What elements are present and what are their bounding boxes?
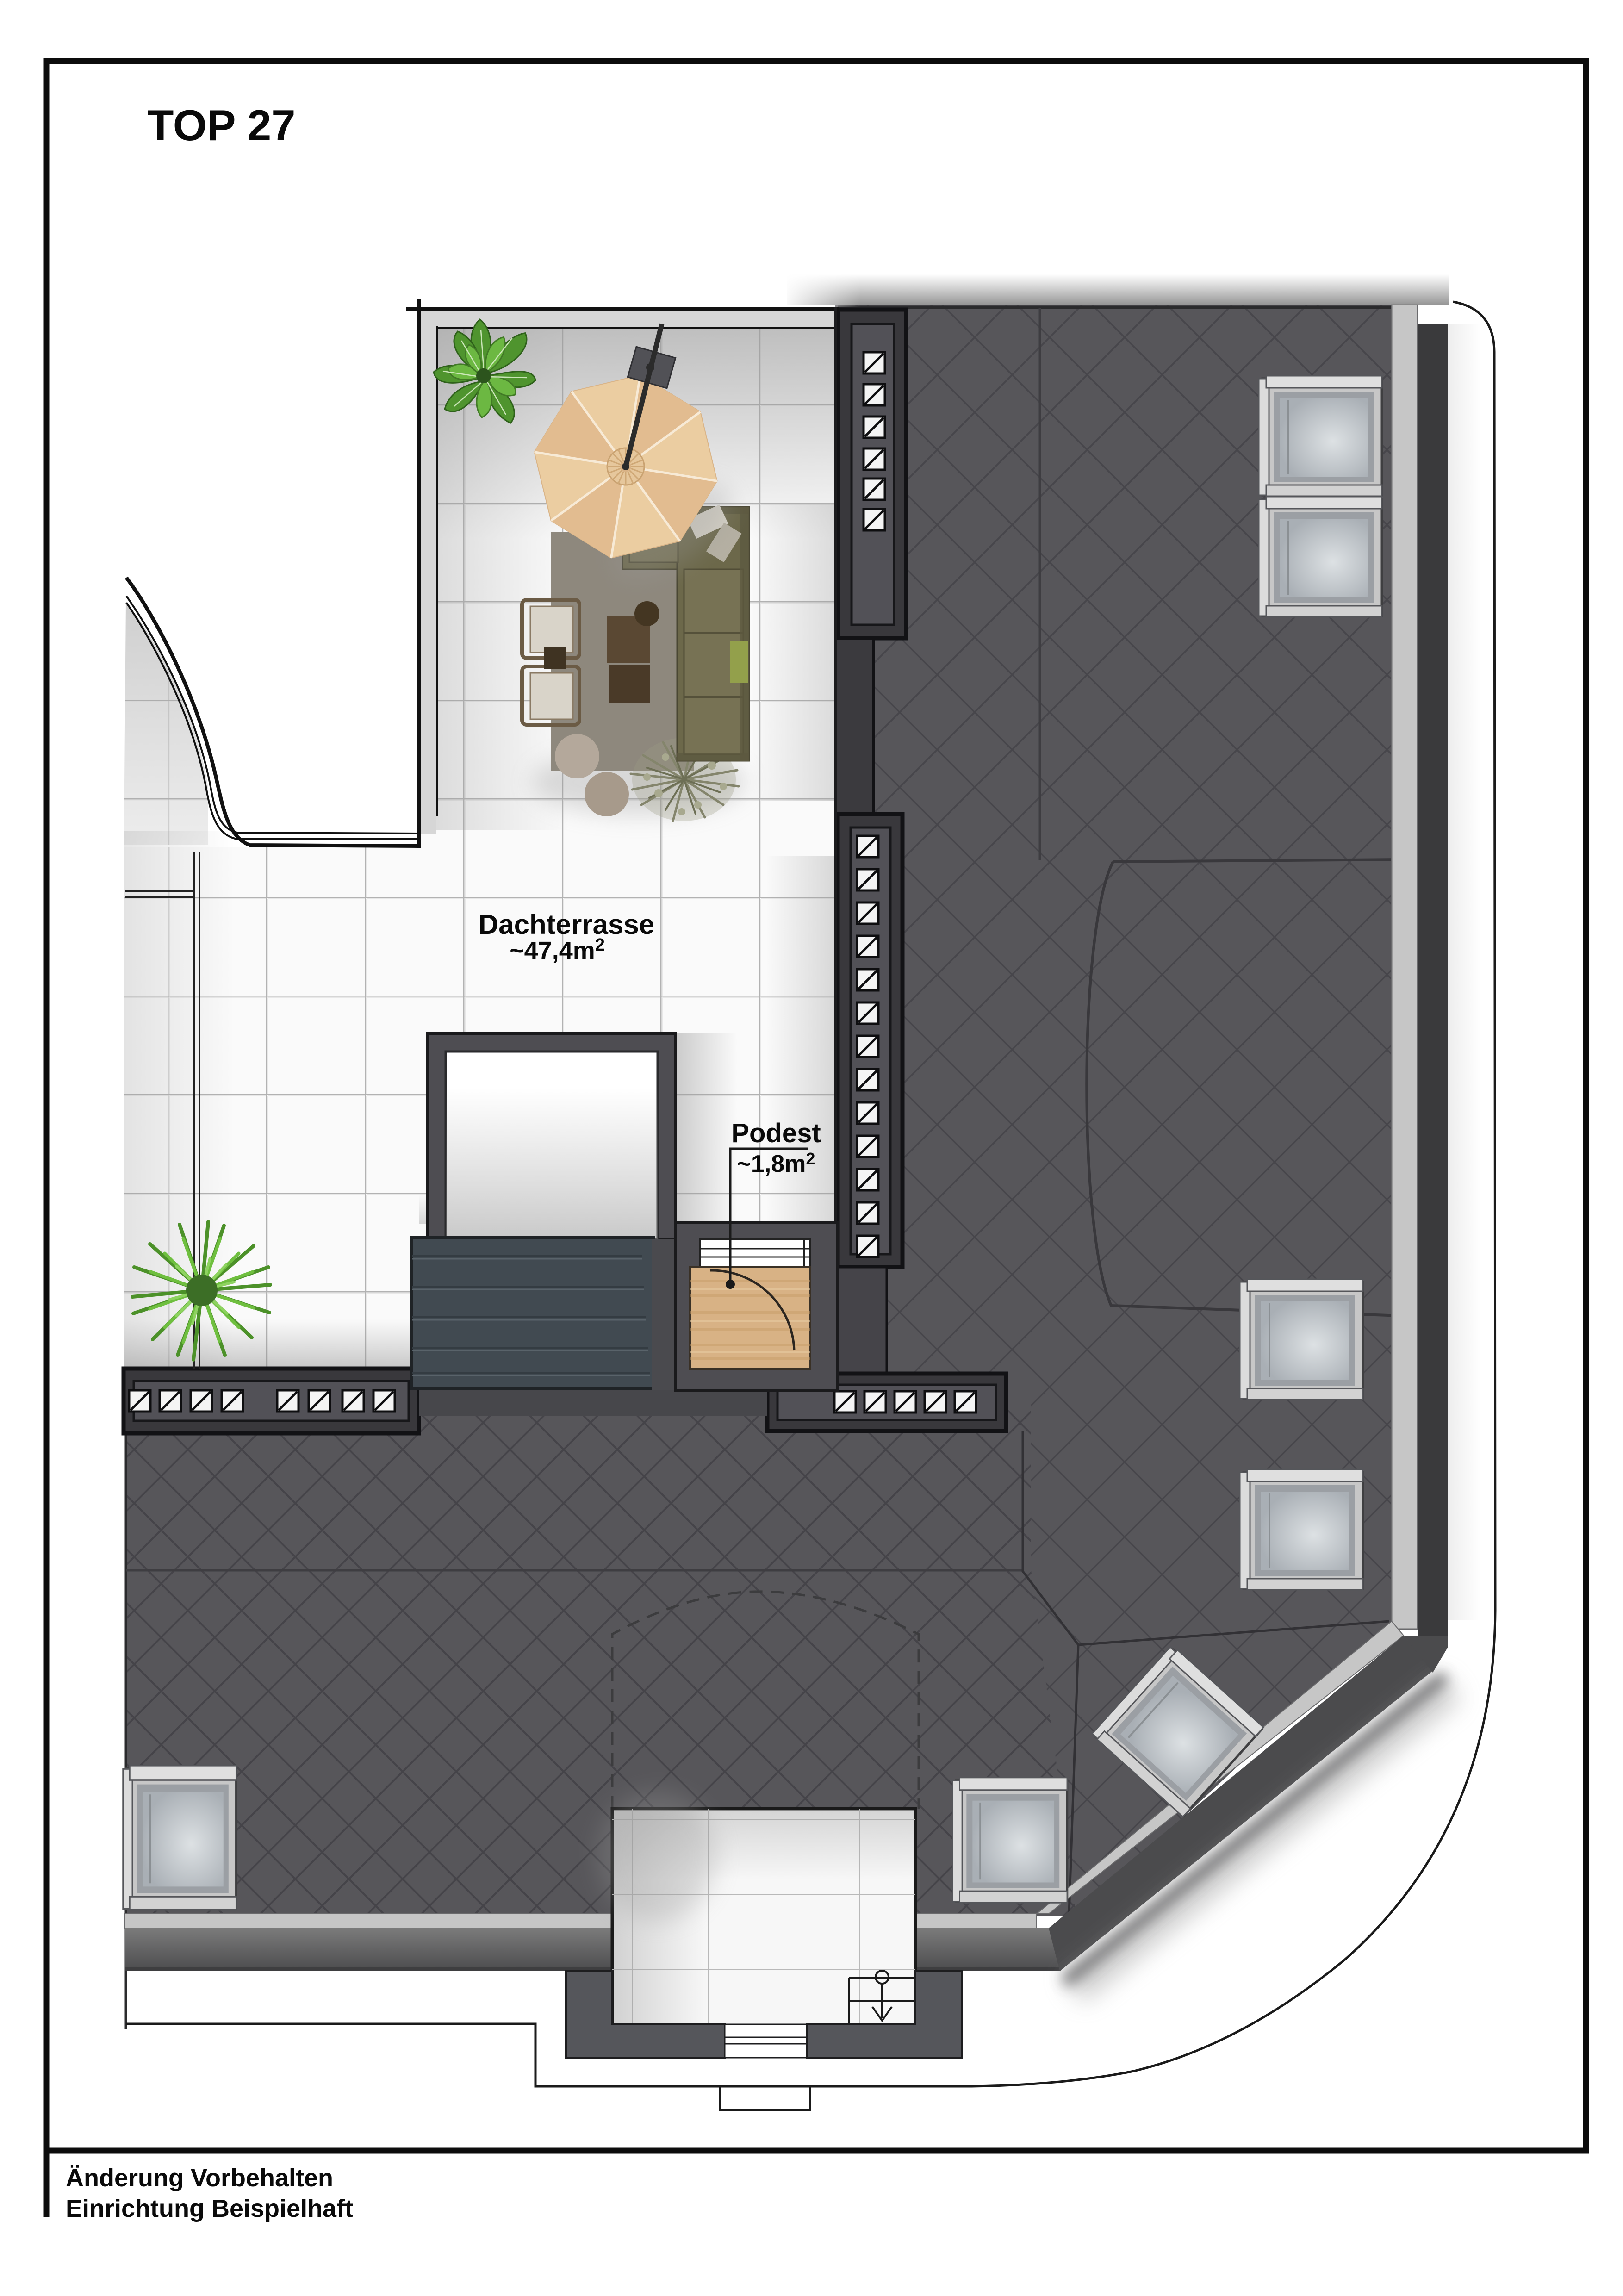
svg-text:Podest: Podest [731, 1118, 821, 1148]
svg-text:~1,8m2: ~1,8m2 [737, 1149, 815, 1177]
svg-text:~47,4m2: ~47,4m2 [510, 935, 605, 964]
svg-text:TOP 27: TOP 27 [147, 101, 296, 149]
svg-text:Einrichtung Beispielhaft: Einrichtung Beispielhaft [66, 2195, 353, 2222]
svg-text:Änderung Vorbehalten: Änderung Vorbehalten [66, 2164, 333, 2192]
svg-text:Dachterrasse: Dachterrasse [479, 909, 654, 940]
